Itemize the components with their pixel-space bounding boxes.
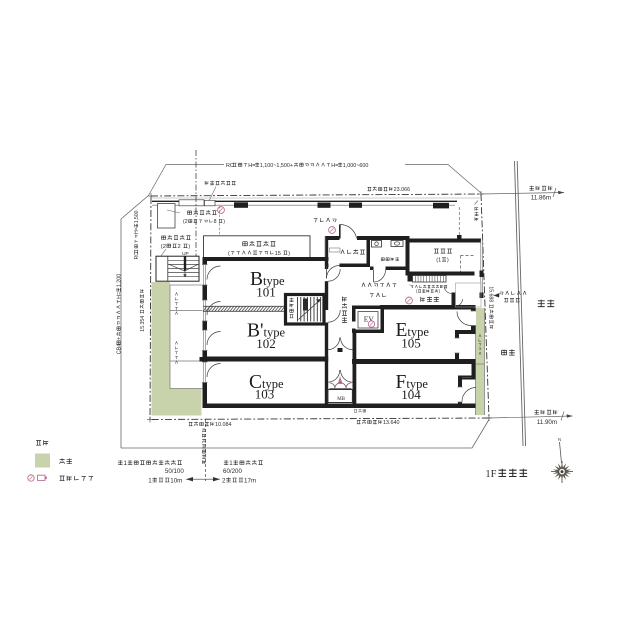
svg-text:60/200: 60/200 bbox=[223, 468, 242, 475]
svg-text:23.066: 23.066 bbox=[394, 187, 411, 193]
svg-text:(: ( bbox=[228, 251, 230, 257]
svg-text:1F: 1F bbox=[485, 469, 496, 480]
svg-text:104: 104 bbox=[401, 387, 421, 402]
svg-text:105: 105 bbox=[401, 335, 421, 350]
svg-text:11.90m: 11.90m bbox=[537, 419, 557, 426]
svg-text:2: 2 bbox=[185, 219, 188, 225]
svg-text:RC: RC bbox=[226, 163, 234, 169]
svg-text:RC: RC bbox=[134, 252, 140, 260]
svg-text:(2: (2 bbox=[161, 244, 166, 250]
svg-text:CB4: CB4 bbox=[117, 344, 123, 355]
svg-text:11.86m: 11.86m bbox=[531, 194, 551, 201]
svg-text:2: 2 bbox=[178, 244, 181, 250]
svg-text:101: 101 bbox=[256, 285, 276, 300]
svg-text:10m: 10m bbox=[170, 477, 182, 484]
svg-text:(1: (1 bbox=[436, 258, 441, 264]
svg-text:): ) bbox=[223, 219, 225, 225]
svg-text:15.688: 15.688 bbox=[488, 286, 494, 302]
svg-text:H=: H= bbox=[117, 292, 123, 299]
svg-text:H=: H= bbox=[331, 163, 338, 169]
svg-text:N: N bbox=[558, 437, 562, 443]
svg-text:8: 8 bbox=[214, 219, 217, 225]
svg-text:1: 1 bbox=[148, 477, 152, 484]
svg-text:H=: H= bbox=[134, 227, 140, 234]
svg-text:+: + bbox=[117, 337, 123, 340]
svg-text:17m: 17m bbox=[244, 477, 256, 484]
svg-text:): ) bbox=[447, 258, 449, 264]
svg-text:102: 102 bbox=[256, 336, 276, 351]
svg-text:1,500: 1,500 bbox=[134, 210, 140, 223]
svg-text:2: 2 bbox=[222, 477, 226, 484]
svg-text:50/100: 50/100 bbox=[165, 468, 184, 475]
svg-text:1,100~1,500+: 1,100~1,500+ bbox=[260, 163, 293, 169]
svg-text:13.640: 13.640 bbox=[383, 420, 400, 426]
svg-text:103: 103 bbox=[255, 387, 275, 402]
svg-text:1: 1 bbox=[124, 460, 128, 467]
svg-text:): ) bbox=[288, 251, 290, 257]
svg-text:15.354: 15.354 bbox=[140, 316, 146, 332]
svg-text:1: 1 bbox=[229, 460, 233, 467]
svg-text:15: 15 bbox=[275, 251, 281, 257]
svg-text:1,000~600: 1,000~600 bbox=[343, 163, 369, 169]
svg-text:): ) bbox=[188, 244, 190, 250]
svg-text:H=: H= bbox=[248, 163, 255, 169]
svg-text:10.084: 10.084 bbox=[215, 422, 232, 428]
svg-text:MB: MB bbox=[337, 397, 345, 402]
svg-text:1,200: 1,200 bbox=[117, 274, 123, 288]
